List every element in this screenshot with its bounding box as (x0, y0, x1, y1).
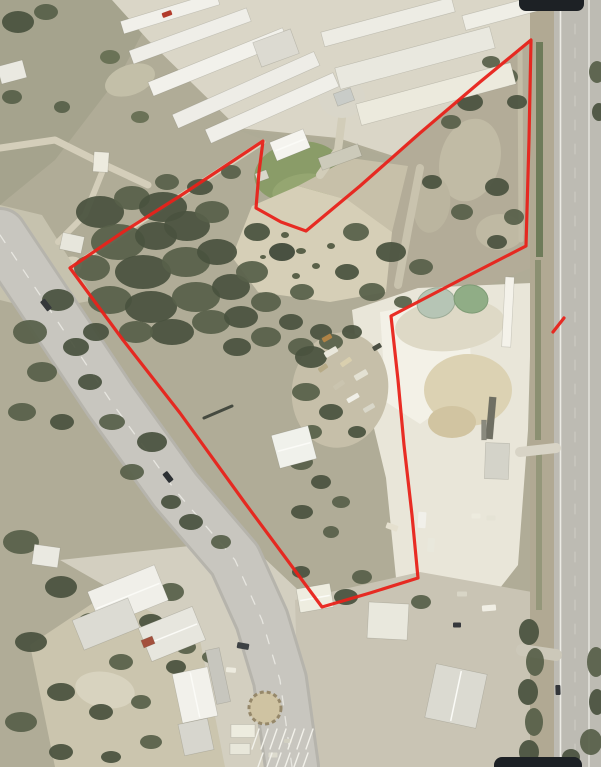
bush-speck (281, 232, 289, 238)
shed-row-roof (230, 744, 250, 755)
gravel-lot-building (367, 602, 409, 640)
tree (8, 403, 36, 421)
gravel-lot-building-roof (367, 602, 409, 640)
tree (342, 325, 362, 339)
tree (441, 115, 461, 129)
aerial-photo (0, 0, 601, 767)
shed-row (231, 725, 255, 738)
tree (5, 712, 37, 732)
tree (197, 239, 237, 265)
white-truck (482, 604, 496, 611)
dark-car (453, 623, 461, 628)
tree (352, 570, 372, 584)
tree (137, 432, 167, 452)
quarry-building (484, 443, 509, 480)
tree (99, 414, 125, 430)
tree (13, 320, 47, 344)
bush-speck (296, 248, 306, 254)
shed-row-roof (231, 725, 255, 738)
tree (295, 346, 327, 368)
tree (335, 264, 359, 280)
tree (411, 595, 431, 609)
tree (34, 4, 58, 20)
tree (49, 744, 73, 760)
tree (155, 174, 179, 190)
small-barn (93, 152, 109, 173)
tree (487, 235, 507, 249)
tree (244, 223, 270, 241)
tree (451, 204, 473, 220)
tree (150, 319, 194, 345)
tree (63, 338, 89, 356)
aerial-image (0, 0, 601, 767)
quarry-structure (482, 420, 487, 440)
tree (409, 259, 433, 275)
tree (192, 310, 230, 334)
bush-speck (312, 263, 320, 269)
tree (179, 514, 203, 530)
tree (89, 704, 113, 720)
tree (74, 255, 110, 281)
tree (251, 292, 281, 312)
tree (109, 654, 133, 670)
tree (2, 11, 34, 33)
tree (525, 708, 543, 736)
tree (101, 751, 121, 763)
tree (50, 414, 74, 430)
tree (343, 223, 369, 241)
tree (2, 90, 22, 104)
tree (290, 284, 314, 300)
tree (78, 374, 102, 390)
parked-car (472, 514, 481, 519)
tree (83, 323, 109, 341)
tree (125, 291, 177, 323)
tree (348, 426, 366, 438)
tree (27, 362, 57, 382)
bottom-house-wing-roof (178, 718, 214, 756)
parked-car (487, 516, 496, 521)
tree (279, 314, 303, 330)
tree (485, 178, 509, 196)
bush-speck (327, 243, 335, 249)
tree (526, 648, 544, 676)
parked-car (269, 753, 278, 758)
tree (359, 283, 385, 301)
quarry-structure-roof (482, 420, 487, 440)
tree (161, 495, 181, 509)
bush-speck (292, 273, 300, 279)
tree (120, 464, 144, 480)
tree (211, 535, 231, 549)
shed-row (230, 744, 250, 755)
tree (507, 95, 527, 109)
tree (223, 338, 251, 356)
tree (131, 111, 149, 123)
white-car (226, 667, 236, 673)
tree (323, 526, 339, 538)
field-shed (32, 544, 61, 567)
tree (45, 576, 77, 598)
bush-speck (260, 255, 266, 259)
tree (504, 209, 524, 225)
tree (251, 327, 281, 347)
tree (292, 383, 320, 401)
white-truck (417, 512, 426, 529)
quarry-entrance (520, 448, 556, 452)
quarry-tan-pit (428, 406, 476, 438)
tree (224, 306, 258, 328)
corner-mask-bottom (494, 757, 582, 767)
brush-row (535, 260, 541, 440)
tree (195, 201, 229, 223)
white-truck (427, 538, 435, 552)
tree (311, 475, 331, 489)
tree (518, 679, 538, 705)
tree (519, 619, 539, 645)
tree (131, 695, 151, 709)
bottom-house-wing (178, 718, 214, 756)
tree (291, 505, 313, 519)
large-gable-building (425, 664, 487, 729)
tree (236, 261, 268, 283)
quarry-building-roof (484, 443, 509, 480)
corner-mask-top (519, 0, 584, 11)
brush-row (536, 450, 542, 610)
tree (140, 735, 162, 749)
tree (91, 224, 145, 260)
parked-car (457, 592, 467, 597)
brush-row (536, 42, 543, 257)
field-shed-roof (32, 544, 61, 567)
tree (54, 101, 70, 113)
tree (15, 632, 47, 652)
tree (580, 729, 601, 755)
tree (332, 496, 350, 508)
tree (100, 50, 120, 64)
tree (47, 683, 75, 701)
tree (422, 175, 442, 189)
stone-circle (249, 692, 281, 724)
tree (319, 404, 343, 420)
car-on-highway (555, 685, 560, 695)
tree (269, 243, 295, 261)
small-barn-roof (93, 152, 109, 173)
tree (376, 242, 406, 262)
